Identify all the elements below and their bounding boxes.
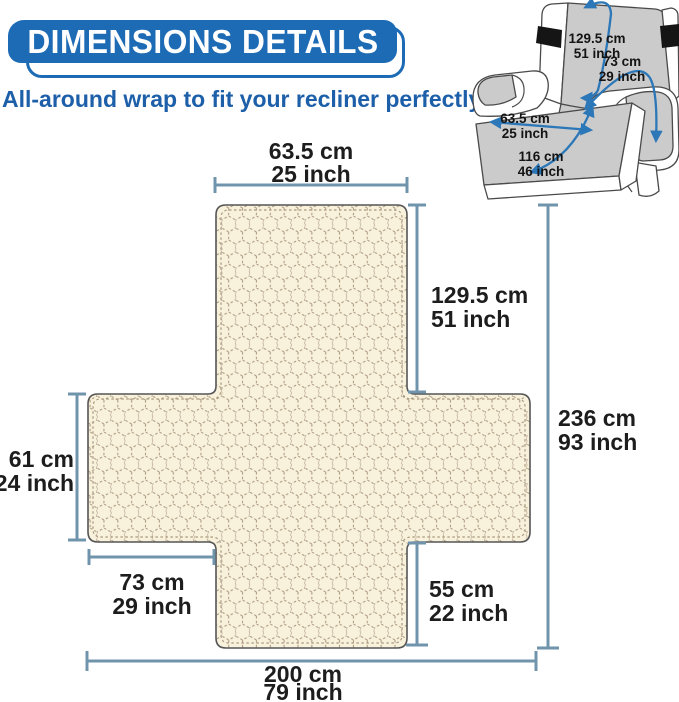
dimension-diagram: 63.5 cm 25 inch 129.5 cm 51 inch 236 cm … xyxy=(0,0,679,702)
label-front-height-cm: 55 cm xyxy=(429,576,494,602)
dim-line-backrest-length xyxy=(408,205,426,392)
label-total-length-inch: 93 inch xyxy=(558,429,637,455)
label-front-height-inch: 22 inch xyxy=(429,600,508,626)
label-left-width-inch: 29 inch xyxy=(112,593,191,619)
label-backrest-length-cm: 129.5 cm xyxy=(431,282,528,308)
recliner-illustration: 129.5 cm 51 inch 73 cm 29 inch 63.5 cm 2… xyxy=(473,2,679,199)
label-left-height-cm: 61 cm xyxy=(9,446,74,472)
recliner-label-seat-width-cm: 63.5 cm xyxy=(500,111,550,126)
label-total-length-cm: 236 cm xyxy=(558,405,636,431)
product-dimensions-image: DIMENSIONS DETAILS All-around wrap to fi… xyxy=(0,0,679,702)
label-total-width-inch: 79 inch xyxy=(263,679,342,702)
dim-line-front-height xyxy=(406,543,428,645)
label-top-width-inch: 25 inch xyxy=(271,161,350,187)
label-backrest-length-inch: 51 inch xyxy=(431,306,510,332)
recliner-label-back-length-cm: 129.5 cm xyxy=(568,31,625,46)
dim-line-total-length xyxy=(537,205,559,648)
recliner-label-seat-length-cm: 116 cm xyxy=(518,149,563,164)
recliner-label-seat-length-inch: 46 inch xyxy=(518,164,565,179)
label-left-width-cm: 73 cm xyxy=(119,569,184,595)
label-left-height-inch: 24 inch xyxy=(0,470,74,496)
recliner-label-arm-width-cm: 73 cm xyxy=(603,54,641,69)
recliner-strap-right xyxy=(660,24,679,48)
recliner-label-arm-width-inch: 29 inch xyxy=(599,69,646,84)
recliner-label-seat-width-inch: 25 inch xyxy=(502,126,549,141)
dim-line-left-width xyxy=(89,549,214,565)
